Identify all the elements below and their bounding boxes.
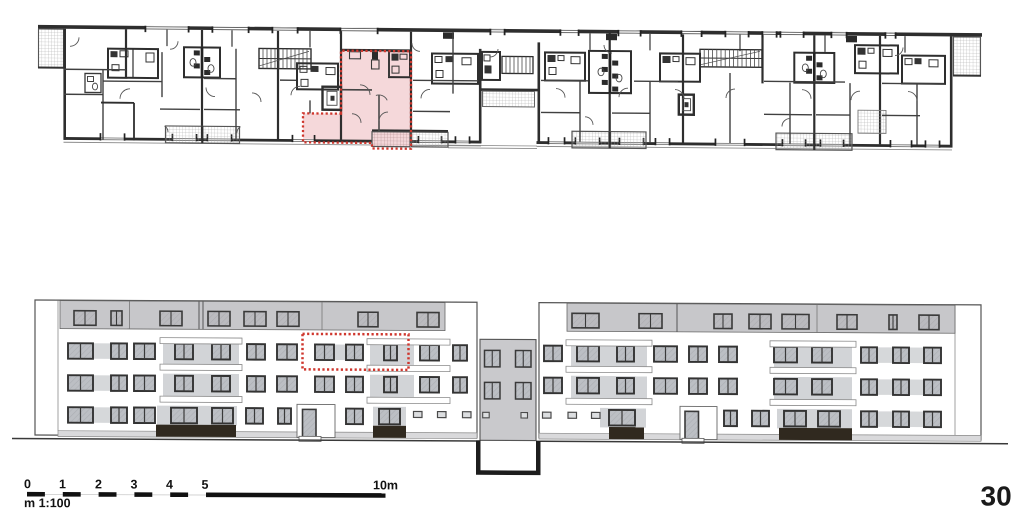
svg-text:10m: 10m [373, 478, 398, 492]
svg-text:3: 3 [131, 477, 138, 491]
svg-text:4: 4 [166, 478, 173, 492]
svg-text:0: 0 [24, 477, 31, 491]
svg-text:1: 1 [59, 477, 66, 491]
svg-text:m 1:100: m 1:100 [24, 496, 71, 510]
svg-text:30: 30 [981, 481, 1012, 512]
svg-text:2: 2 [95, 477, 102, 491]
svg-text:5: 5 [202, 478, 209, 492]
